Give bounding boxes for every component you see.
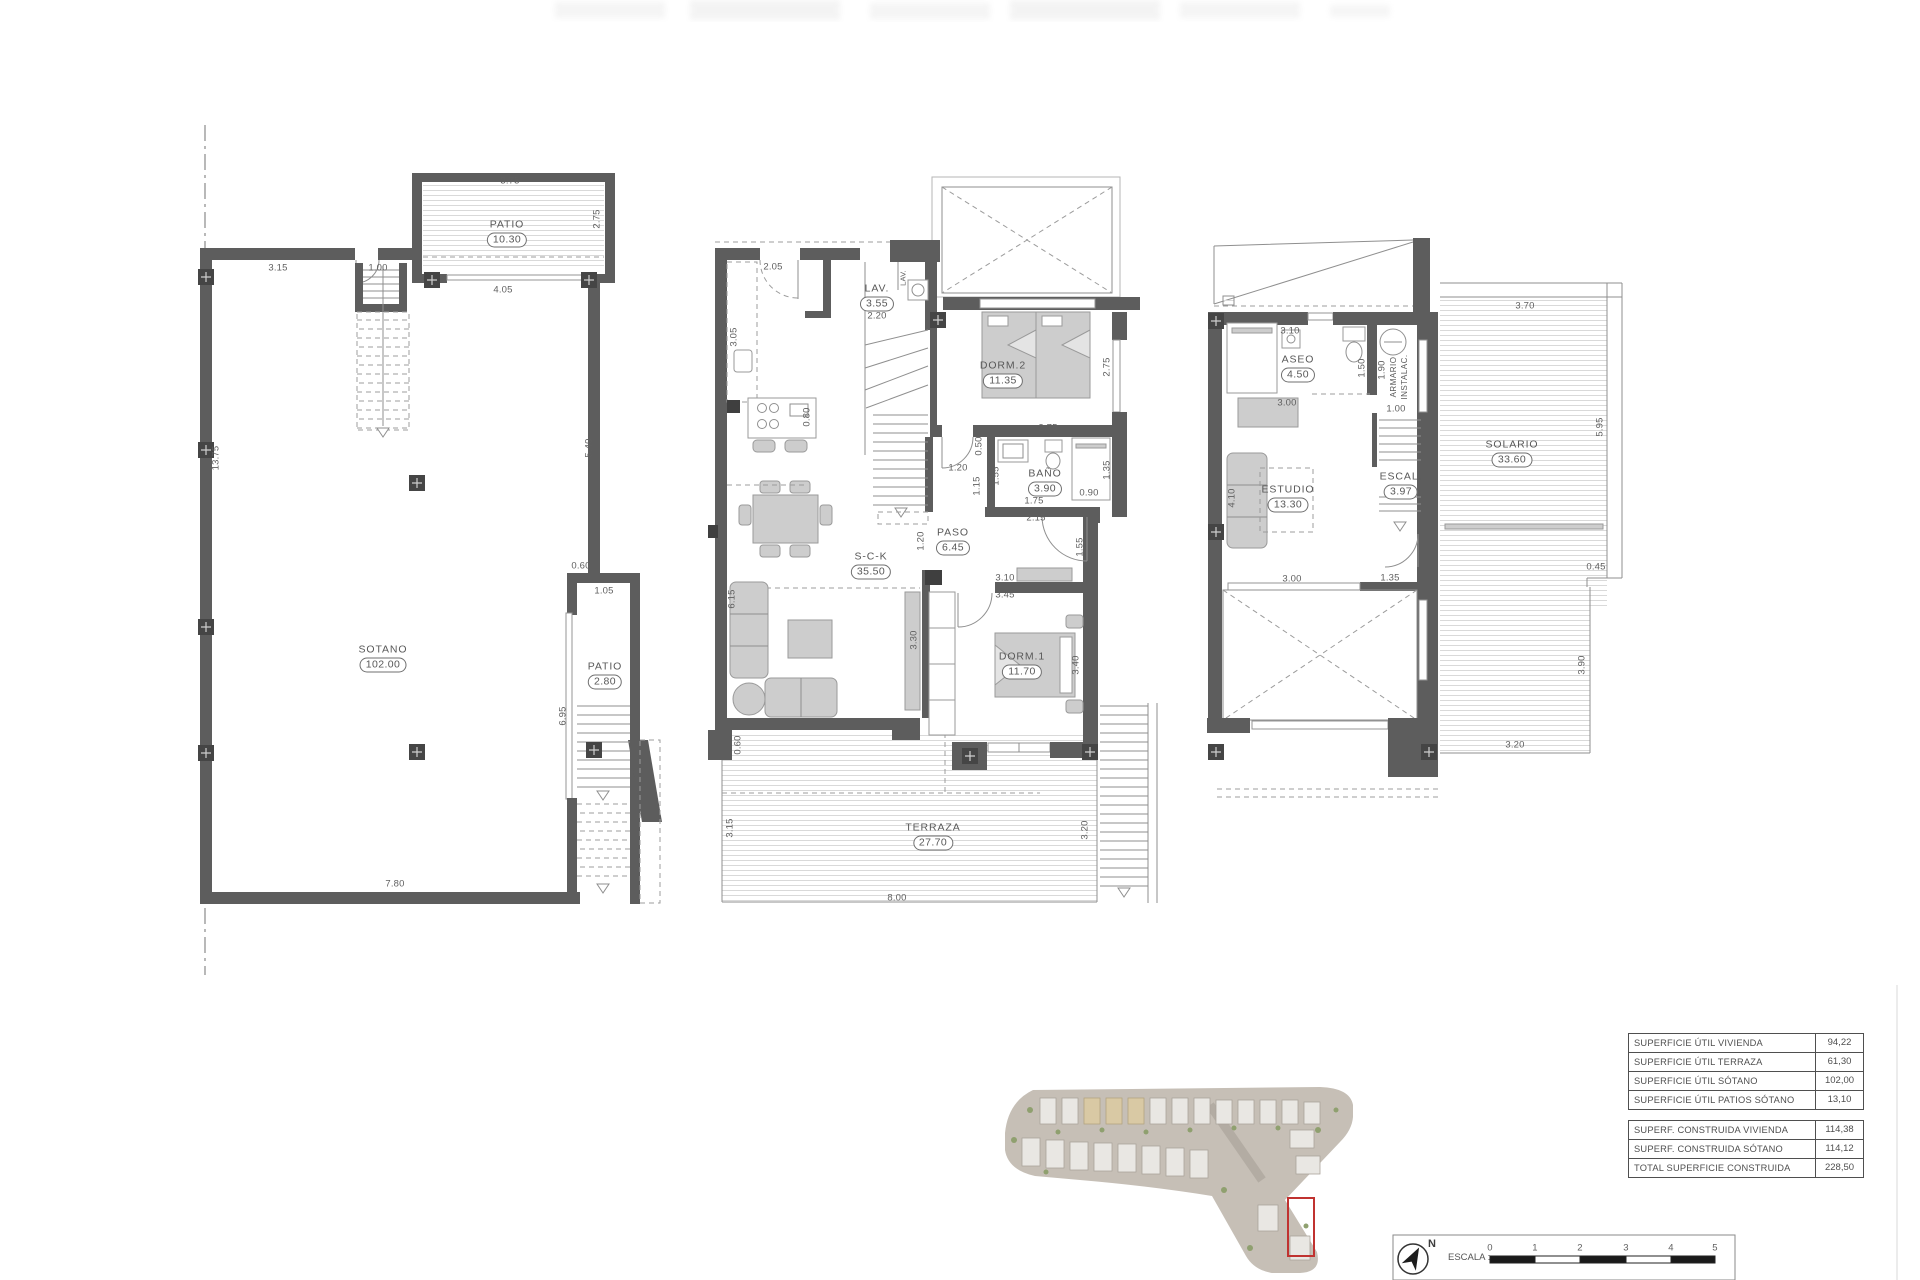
dim-label: 5.95 [1595, 417, 1606, 436]
dim-label: 0.80 [802, 407, 813, 426]
table-row: SUPERFICIE ÚTIL PATIOS SÓTANO 13,10 [1629, 1090, 1863, 1109]
dim-label: 5.40 [584, 438, 595, 457]
dim-label: 3.40 [1071, 655, 1082, 674]
dim-label: 13.75 [211, 446, 222, 471]
dim-label: 0.50 [974, 436, 985, 455]
dim-label: 4.10 [1227, 488, 1238, 507]
dim-label: 1.20 [948, 463, 967, 474]
dim-label: 3.10 [995, 573, 1014, 584]
scale-tick: 2 [1577, 1243, 1582, 1254]
table-row: SUPERFICIE ÚTIL TERRAZA 61,30 [1629, 1052, 1863, 1071]
dim-label: 2.05 [763, 262, 782, 273]
dim-label: 3.15 [725, 818, 736, 837]
dim-label: 1.35 [1380, 573, 1399, 584]
dim-label: 3.00 [1282, 574, 1301, 585]
scale-label: ESCALA : [1448, 1252, 1490, 1263]
plan-sotano [198, 125, 662, 975]
plan-planta-alta [1207, 238, 1622, 797]
dim-label: 1.50 [1357, 358, 1368, 377]
dim-label: 3.90 [1577, 655, 1588, 674]
dim-label: 3.15 [268, 263, 287, 274]
dim-label: 3.00 [1277, 398, 1296, 409]
room-label-dorm1: DORM.1 11.70 [999, 651, 1045, 680]
dim-label: 3.70 [1515, 301, 1534, 312]
dim-label: 1.05 [594, 586, 613, 597]
room-label-dorm2: DORM.2 11.35 [980, 360, 1026, 389]
dim-label: 0.45 [1586, 562, 1605, 573]
dim-label: 1.55 [991, 466, 1002, 485]
room-label-escal: ESCAL. 3.97 [1380, 471, 1423, 500]
dim-label: 1.55 [1075, 537, 1086, 556]
table-row: SUPERF. CONSTRUIDA SÓTANO 114,12 [1629, 1139, 1863, 1158]
table-row: SUPERFICIE ÚTIL VIVIENDA 94,22 [1629, 1034, 1863, 1052]
dim-label: 2.15 [1026, 513, 1045, 524]
dim-label: 3.75 [500, 176, 519, 187]
site-plan [1005, 1087, 1353, 1273]
ghost-header [555, 0, 1390, 20]
room-label-lav: LAV. 3.55 [860, 283, 894, 312]
dim-label: 3.10 [1280, 326, 1299, 337]
scale-tick: 0 [1487, 1243, 1492, 1254]
dim-label: 1.75 [1024, 496, 1043, 507]
scale-tick: 1 [1532, 1243, 1537, 1254]
dim-label: 2.75 [1038, 423, 1057, 434]
dim-label: 3.30 [909, 630, 920, 649]
dim-label: 1.90 [1377, 360, 1388, 379]
table-row: SUPERFICIE ÚTIL SÓTANO 102,00 [1629, 1071, 1863, 1090]
room-label-patio-top: PATIO 10.30 [487, 219, 527, 248]
dim-label: 1.00 [368, 263, 387, 274]
room-label-patio-side: PATIO 2.80 [588, 661, 622, 690]
dim-label: 4.05 [493, 285, 512, 296]
dim-label: 1.15 [972, 476, 983, 495]
room-label-sotano: SOTANO 102.00 [359, 644, 408, 673]
room-label-terraza: TERRAZA 27.70 [905, 822, 960, 851]
room-label-lav2: LAV. [899, 270, 908, 286]
room-label-paso: PASO 6.45 [936, 527, 970, 556]
table-row: SUPERF. CONSTRUIDA VIVIENDA 114,38 [1629, 1121, 1863, 1139]
room-label-solario: SOLARIO 33.60 [1486, 439, 1539, 468]
room-label-sck: S-C-K 35.50 [851, 551, 891, 580]
plan-planta-baja [708, 177, 1157, 903]
floorplan-sheet: PATIO 10.30 SOTANO 102.00 PATIO 2.80 LAV… [0, 0, 1920, 1280]
dim-label: 2.20 [867, 311, 886, 322]
dim-label: 0.60 [733, 735, 744, 754]
scalebar-graphic [1393, 1235, 1735, 1280]
room-label-bano: BAÑO 3.90 [1028, 468, 1062, 497]
table-row: TOTAL SUPERFICIE CONSTRUIDA 228,50 [1629, 1158, 1863, 1177]
dim-label: 3.20 [1080, 820, 1091, 839]
scale-tick: 3 [1623, 1243, 1628, 1254]
room-label-aseo: ASEO 4.50 [1281, 354, 1315, 383]
dim-label: 1.35 [1102, 460, 1113, 479]
room-label-estudio: ESTUDIO 13.30 [1262, 484, 1315, 513]
dim-label: 3.45 [995, 590, 1014, 601]
dim-label: 1.20 [916, 531, 927, 550]
dim-label: 8.00 [887, 893, 906, 904]
dim-label: 6.95 [558, 706, 569, 725]
dim-label: 1.00 [1386, 404, 1405, 415]
area-table-util: SUPERFICIE ÚTIL VIVIENDA 94,22 SUPERFICI… [1628, 1033, 1864, 1110]
scale-tick: 4 [1668, 1243, 1673, 1254]
dim-label: 2.75 [592, 209, 603, 228]
dim-label: 0.60 [571, 561, 590, 572]
compass-north-label: N [1428, 1238, 1436, 1250]
area-table-construida: SUPERF. CONSTRUIDA VIVIENDA 114,38 SUPER… [1628, 1120, 1864, 1178]
dim-label: 3.20 [1505, 740, 1524, 751]
dim-label: 6.15 [727, 589, 738, 608]
dim-label: 0.90 [1079, 488, 1098, 499]
room-label-armario: ARMARIO INSTALAC. [1389, 354, 1409, 399]
dim-label: 2.75 [1102, 357, 1113, 376]
scale-tick: 5 [1712, 1243, 1717, 1254]
dim-label: 3.05 [729, 327, 740, 346]
dim-label: 7.80 [385, 879, 404, 890]
